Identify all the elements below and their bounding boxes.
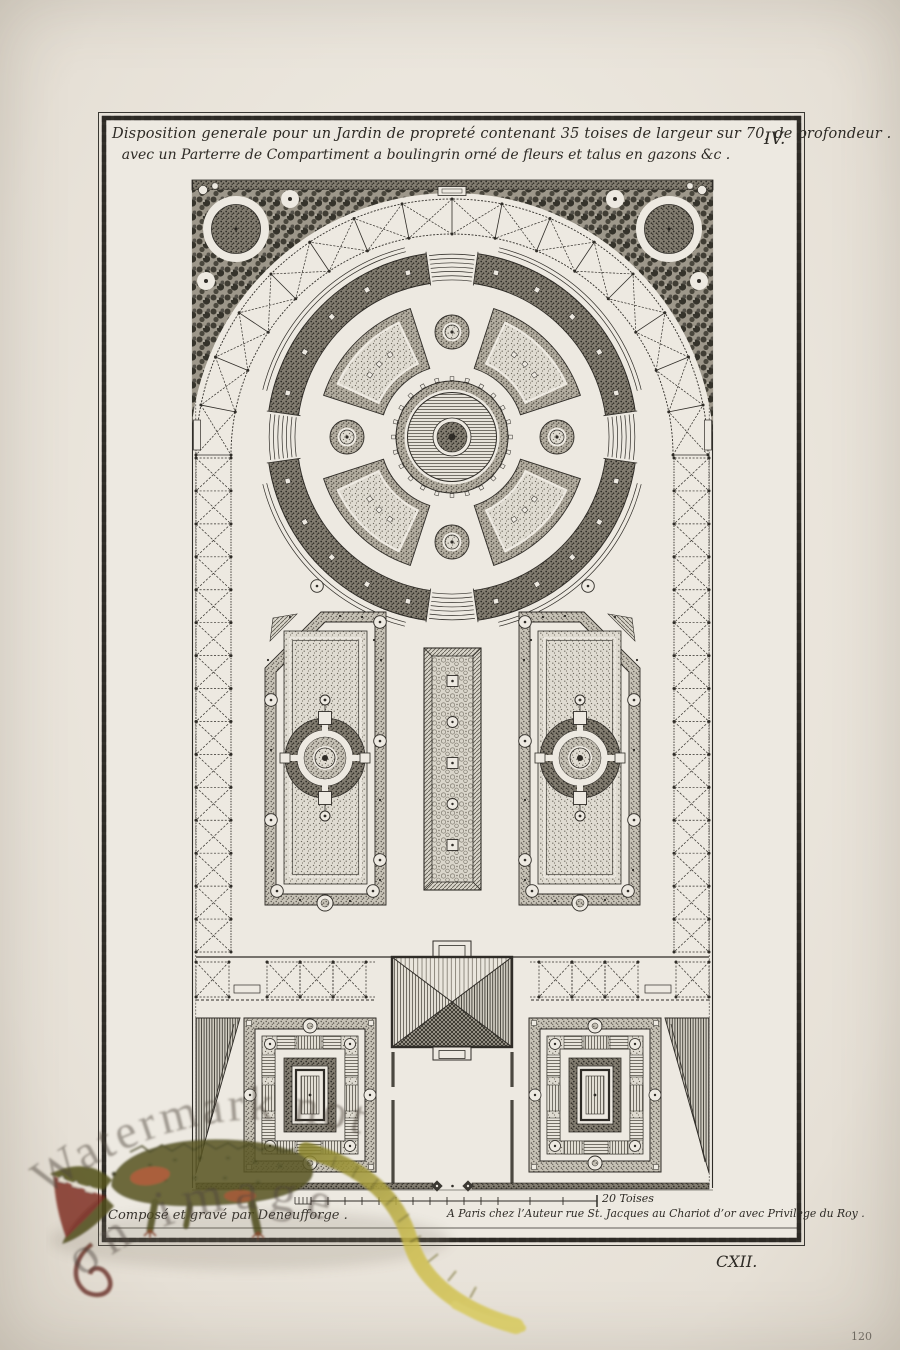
engraving-page: Disposition generale pour un Jardin de p…: [0, 0, 900, 1350]
watermark-overlay: Watermark not on image: [0, 0, 900, 1350]
crocodile-eye: [112, 1172, 116, 1176]
